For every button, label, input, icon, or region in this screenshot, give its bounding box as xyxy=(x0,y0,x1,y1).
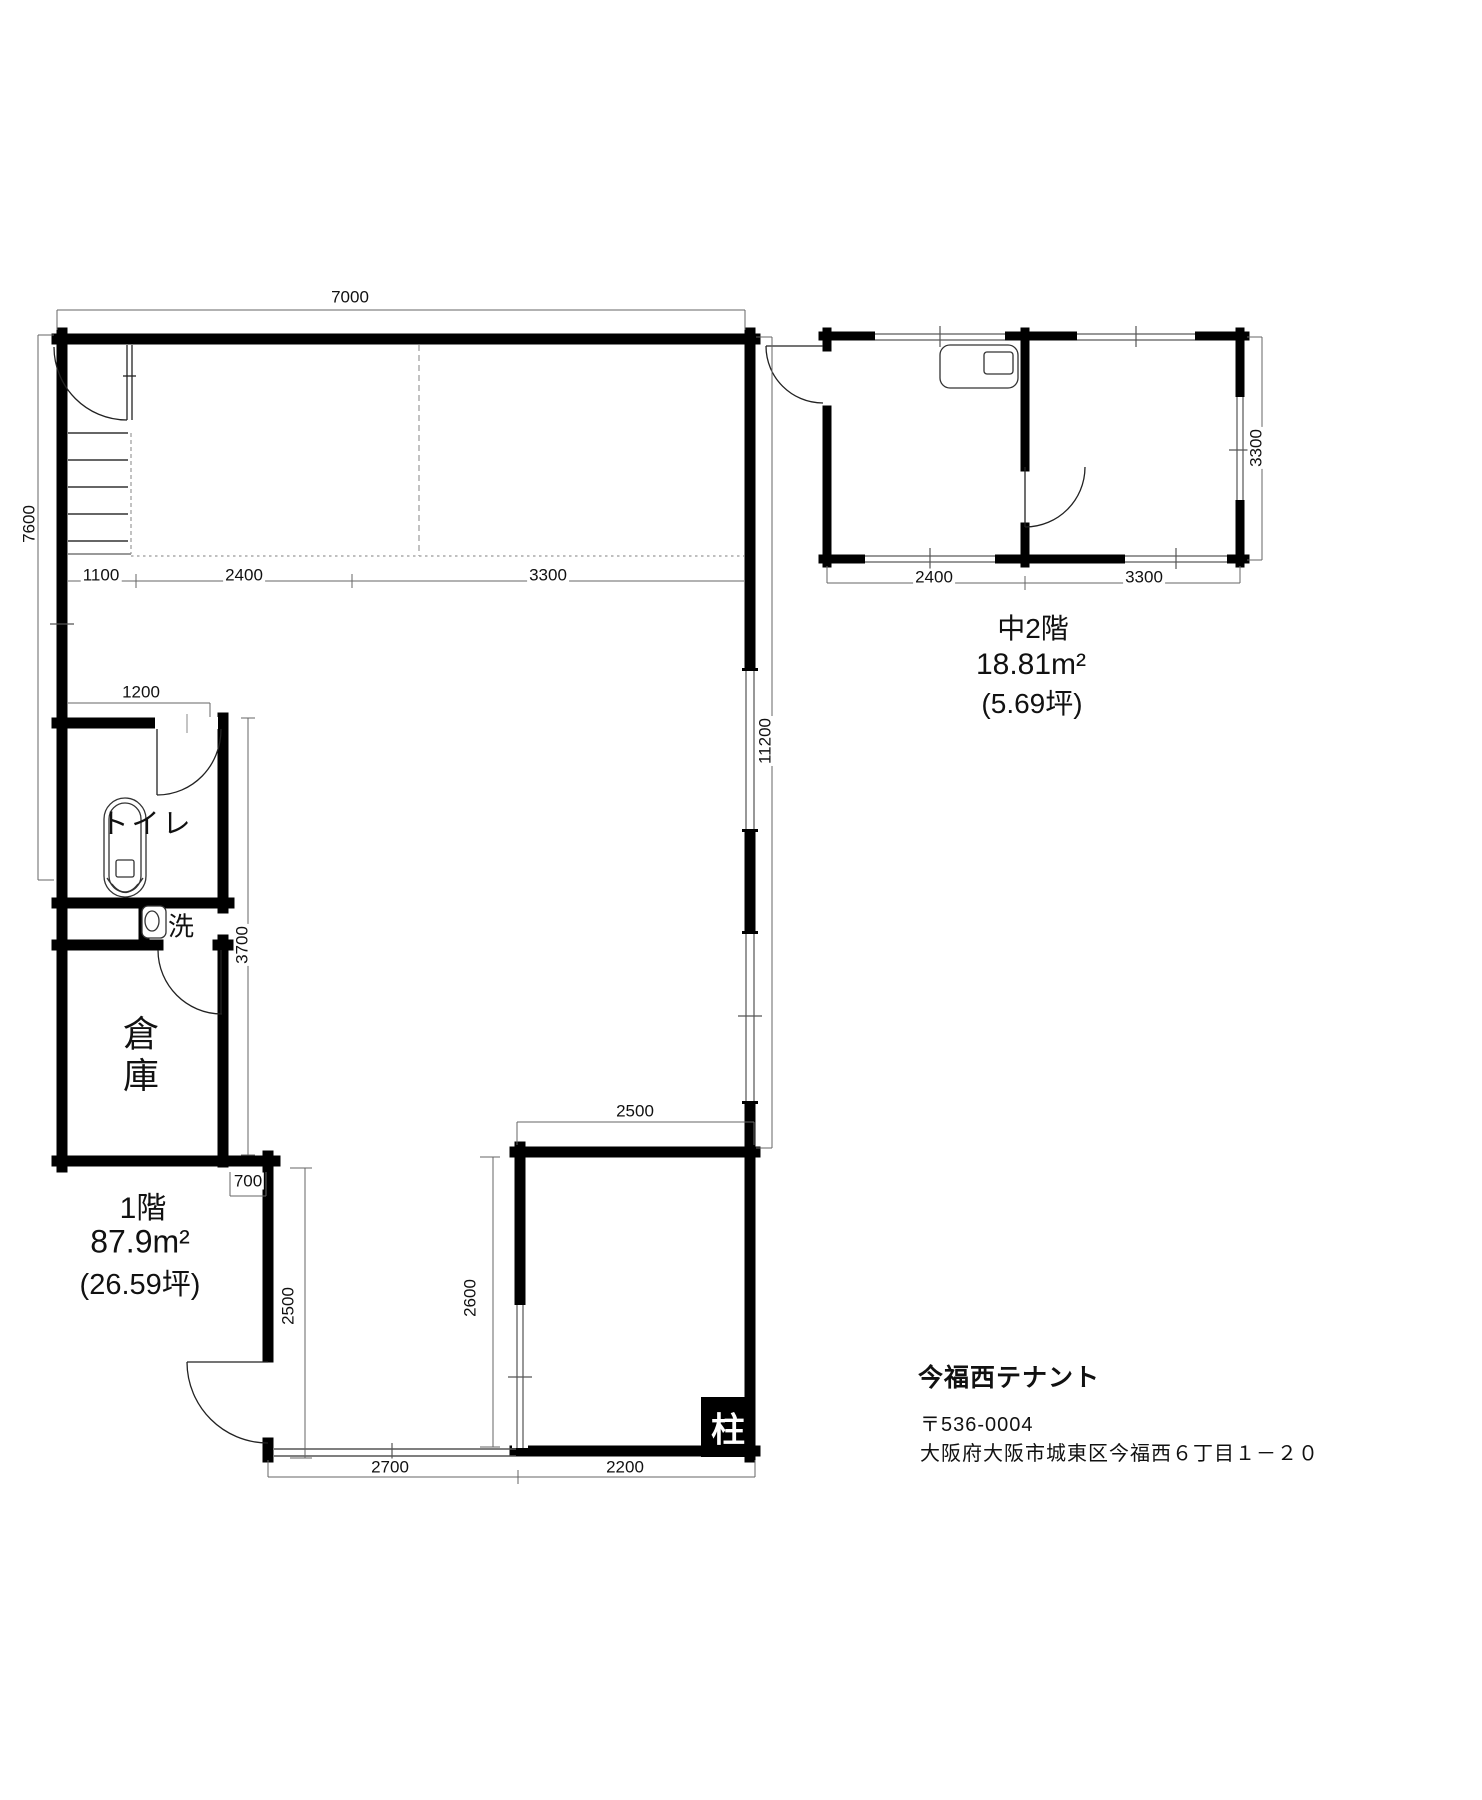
dim-jog: 700 xyxy=(232,1173,264,1190)
wash-label: 洗 xyxy=(168,907,194,944)
dim-right-height: 11200 xyxy=(757,716,774,766)
mezzanine-entry-door xyxy=(766,346,823,403)
dim-top-width: 7000 xyxy=(329,289,371,306)
dim-toilet-width: 1200 xyxy=(120,684,162,701)
stairs xyxy=(68,433,131,554)
mezzanine-projection-lines xyxy=(131,345,744,556)
dim-service-column: 3700 xyxy=(234,924,251,966)
floor-plan-drawing xyxy=(0,0,1482,1800)
pillar-label: 柱 xyxy=(711,1403,745,1452)
toilet-label: トイレ xyxy=(100,802,193,842)
floorplan-page: 7000 7600 1100 2400 3300 1200 3700 700 2… xyxy=(0,0,1482,1800)
dim-mezz-left-room: 2400 xyxy=(913,569,955,586)
mezzanine-doors xyxy=(766,346,1085,527)
dim-inner-room-height: 2600 xyxy=(462,1277,479,1319)
wash-basin-fixture xyxy=(142,906,166,938)
dim-stair-bay: 1100 xyxy=(81,567,122,584)
property-postal: 〒536-0004 xyxy=(920,1408,1034,1437)
dim-center-bay: 2400 xyxy=(223,567,265,584)
first-floor-tsubo: (26.59坪) xyxy=(80,1261,201,1303)
dim-bottom-left: 2700 xyxy=(369,1459,411,1476)
dim-inner-room-width: 2500 xyxy=(614,1103,656,1120)
mezzanine-windows xyxy=(865,326,1251,569)
dim-mezz-depth: 3300 xyxy=(1248,427,1265,469)
mezzanine-tsubo: (5.69坪) xyxy=(981,682,1082,722)
dim-mezz-right-room: 3300 xyxy=(1123,569,1165,586)
storage-door xyxy=(158,950,222,1014)
dim-right-bay: 3300 xyxy=(527,567,569,584)
first-floor-name: 1階 xyxy=(120,1183,167,1227)
mezzanine-area: 18.81m² xyxy=(976,648,1086,682)
property-title: 今福西テナント xyxy=(918,1358,1100,1394)
mezzanine-name: 中2階 xyxy=(997,607,1069,647)
first-floor-area: 87.9m² xyxy=(90,1224,190,1261)
mezzanine-fixture xyxy=(940,345,1018,388)
toilet-door xyxy=(157,729,221,795)
side-exit-door xyxy=(187,1362,268,1443)
dim-lower-left-wall: 2500 xyxy=(280,1285,297,1327)
property-address: 大阪府大阪市城東区今福西６丁目１－２０ xyxy=(920,1437,1319,1466)
mezzanine-partition-door xyxy=(1025,467,1085,527)
dim-left-height: 7600 xyxy=(21,503,38,545)
storage-label: 倉庫 xyxy=(121,1013,161,1098)
mezzanine-walls xyxy=(823,332,1245,563)
dim-bottom-right: 2200 xyxy=(604,1459,646,1476)
